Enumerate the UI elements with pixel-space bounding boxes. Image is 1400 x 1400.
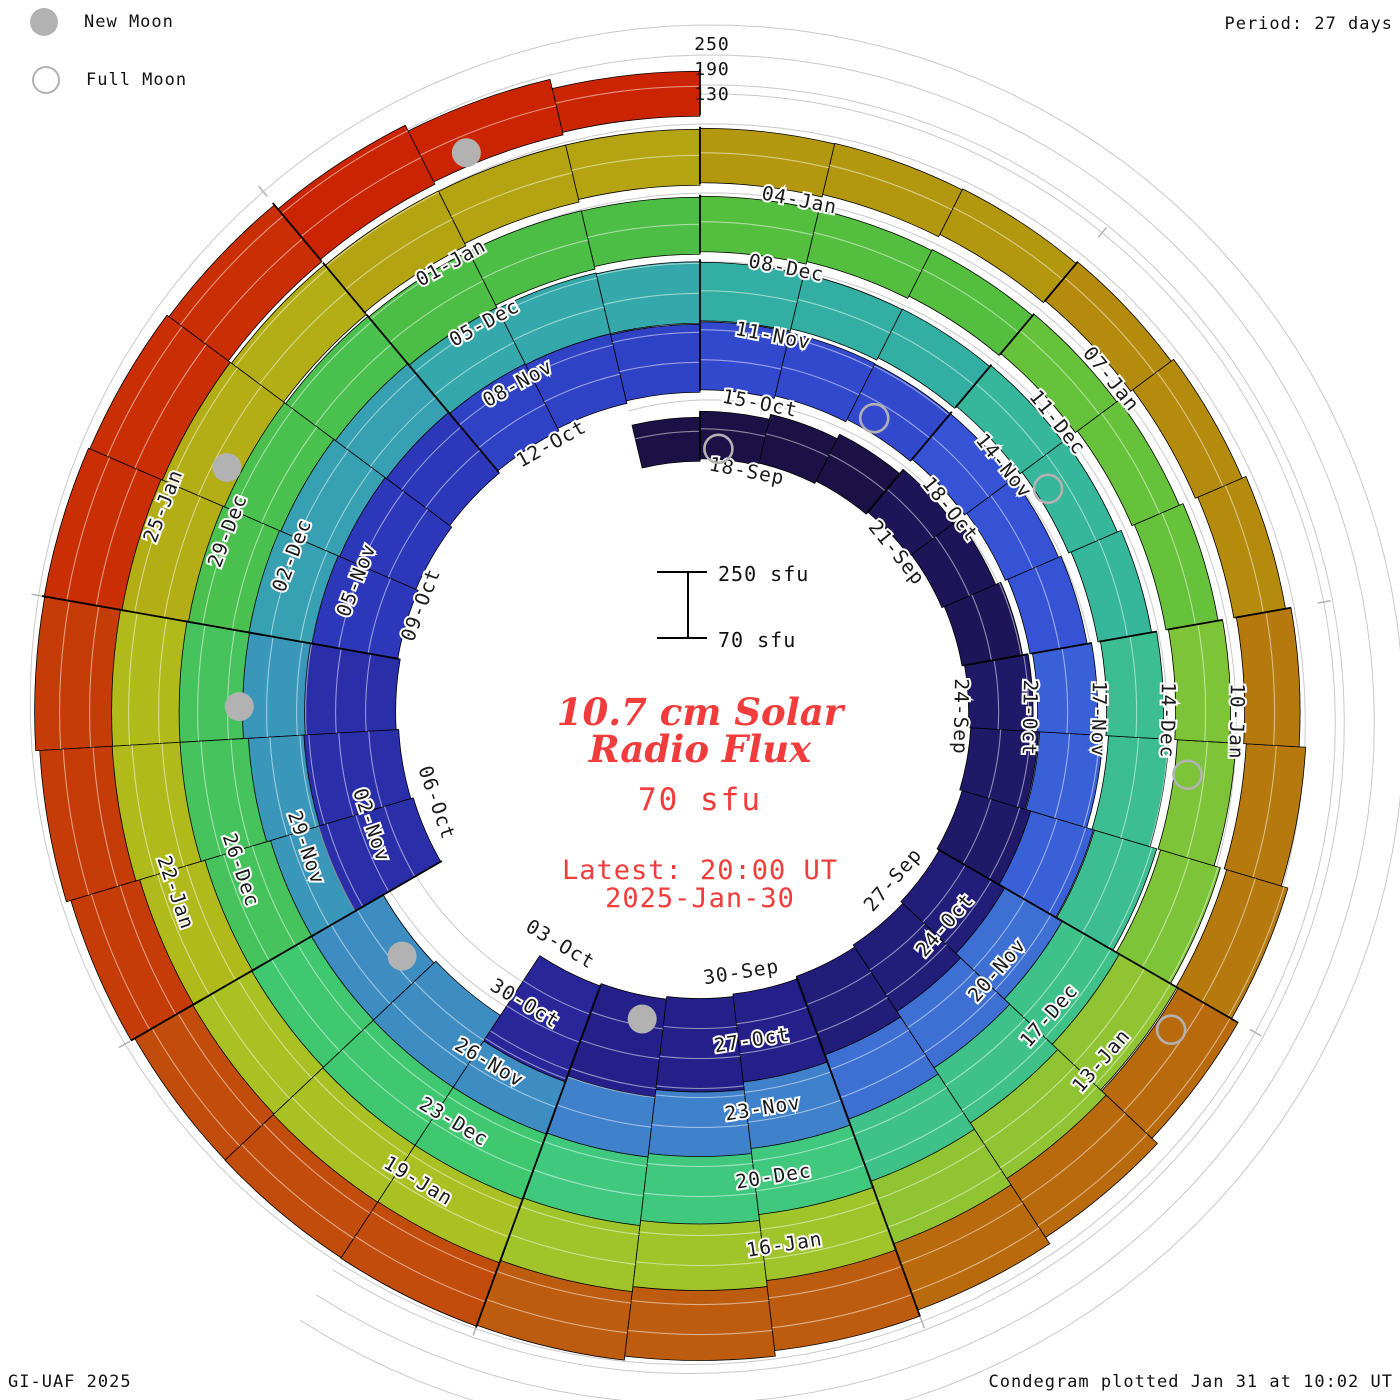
radial-scale-190: 190 xyxy=(682,59,742,80)
new-moon-marker xyxy=(225,692,254,721)
full-moon-label: Full Moon xyxy=(86,70,187,90)
plotted-timestamp: Condegram plotted Jan 31 at 10:02 UT xyxy=(989,1372,1393,1392)
chart-title-line2: Radio Flux xyxy=(450,731,950,768)
flux-bar-day xyxy=(1224,744,1305,886)
flux-bar-day xyxy=(552,71,700,132)
date-label: 24-Sep xyxy=(949,678,973,755)
flux-scale-bottom-label: 70 sfu xyxy=(718,628,796,652)
latest-block: Latest: 20:00 UT 2025-Jan-30 xyxy=(450,857,950,914)
segment-tick xyxy=(1250,1029,1261,1036)
flux-scale-bar-bottom-cap xyxy=(657,637,707,639)
credit-label: GI-UAF 2025 xyxy=(8,1372,132,1392)
new-moon-marker xyxy=(388,942,417,971)
date-label: 14-Dec xyxy=(1156,682,1180,759)
latest-date: 2025-Jan-30 xyxy=(450,885,950,913)
date-label: 10-Jan xyxy=(1225,683,1249,760)
condegram-page: 18-Sep21-Sep24-Sep27-Sep30-Sep03-Oct06-O… xyxy=(0,0,1400,1400)
flux-bar-day xyxy=(632,417,700,468)
new-moon-marker xyxy=(452,138,481,167)
period-label: Period: 27 days xyxy=(1224,14,1393,34)
flux-scale-bar-line xyxy=(687,571,689,639)
latest-time: Latest: 20:00 UT xyxy=(450,857,950,885)
new-moon-marker xyxy=(628,1005,657,1034)
flux-scale-top-label: 250 sfu xyxy=(718,562,809,586)
flux-scale-bar-top-cap xyxy=(657,571,707,573)
current-flux-value: 70 sfu xyxy=(450,782,950,818)
new-moon-marker xyxy=(212,453,241,482)
flux-bar-day xyxy=(566,129,700,199)
flux-bar-day xyxy=(1158,740,1236,866)
radial-scale-130: 130 xyxy=(682,84,742,105)
date-label: 30-Sep xyxy=(702,955,781,990)
legend-new-moon: New Moon xyxy=(30,8,174,36)
chart-title-block: 10.7 cm Solar Radio Flux 70 sfu xyxy=(450,694,950,818)
radial-scale-250: 250 xyxy=(682,34,742,55)
full-moon-icon xyxy=(32,66,60,94)
date-label: 21-Oct xyxy=(1018,679,1042,756)
date-label: 17-Nov xyxy=(1087,681,1111,758)
legend-full-moon: Full Moon xyxy=(32,66,187,94)
segment-tick xyxy=(119,1041,130,1048)
flux-bar-day xyxy=(581,197,700,266)
new-moon-label: New Moon xyxy=(84,12,174,32)
chart-title-line1: 10.7 cm Solar xyxy=(450,694,950,731)
new-moon-icon xyxy=(30,8,58,36)
